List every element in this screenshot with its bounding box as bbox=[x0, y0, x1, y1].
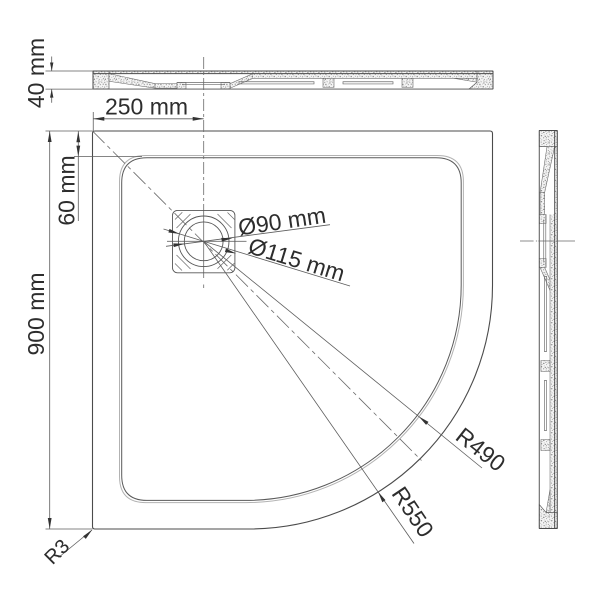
svg-text:Ø90 mm: Ø90 mm bbox=[236, 202, 327, 241]
svg-text:R490: R490 bbox=[451, 422, 510, 476]
svg-text:40 mm: 40 mm bbox=[23, 38, 49, 108]
svg-text:900 mm: 900 mm bbox=[23, 272, 49, 355]
svg-text:250 mm: 250 mm bbox=[105, 94, 188, 120]
svg-text:R3: R3 bbox=[40, 535, 74, 569]
svg-text:R550: R550 bbox=[387, 482, 439, 542]
svg-text:Ø115 mm: Ø115 mm bbox=[245, 233, 348, 287]
svg-text:60 mm: 60 mm bbox=[54, 155, 80, 225]
